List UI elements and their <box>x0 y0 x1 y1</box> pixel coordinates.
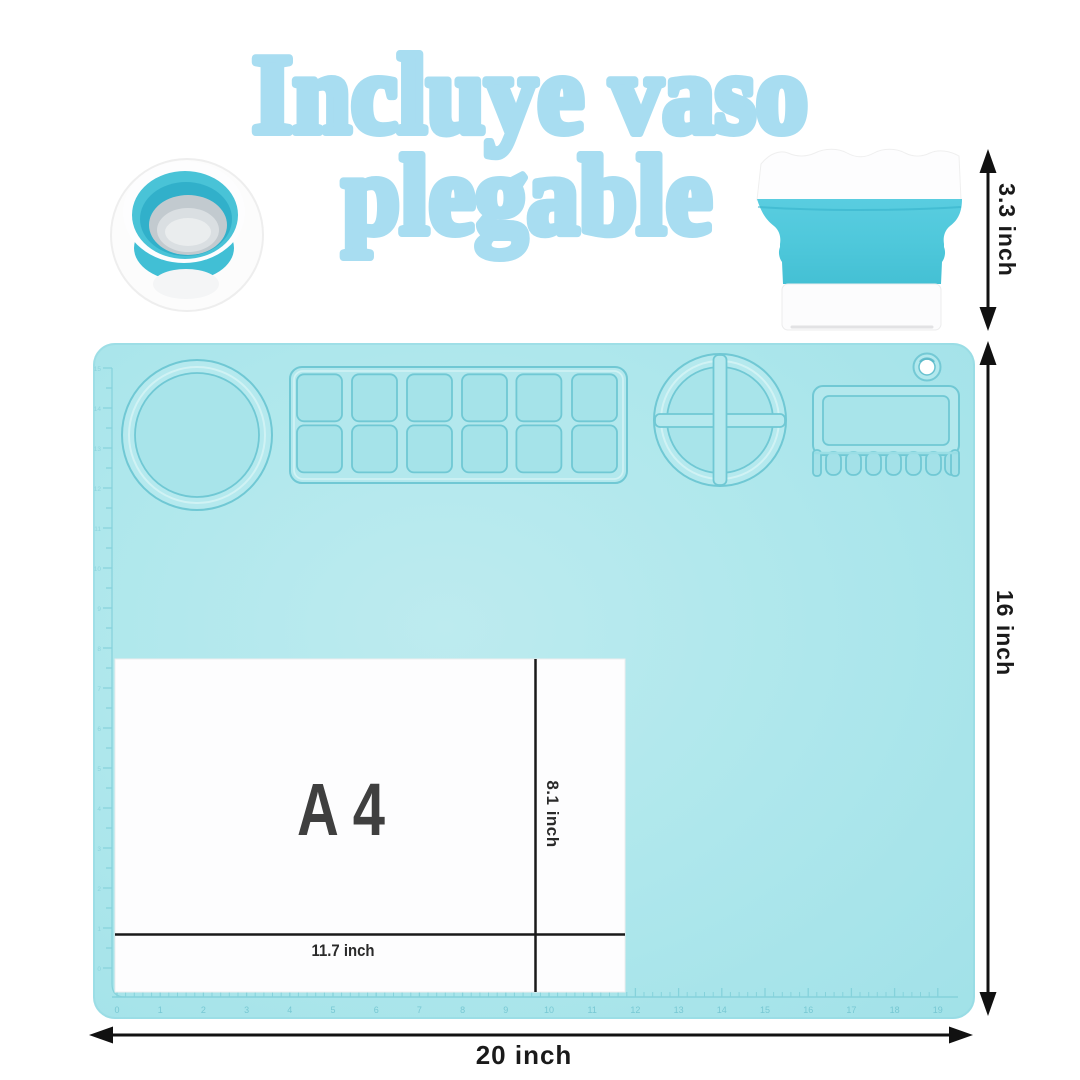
svg-text:15: 15 <box>760 1005 770 1015</box>
svg-text:13: 13 <box>674 1005 684 1015</box>
svg-text:11: 11 <box>94 526 101 533</box>
svg-text:plegable: plegable <box>342 134 712 258</box>
svg-text:8.1 inch: 8.1 inch <box>543 780 562 847</box>
svg-text:2: 2 <box>201 1005 206 1015</box>
svg-text:7: 7 <box>417 1005 422 1015</box>
svg-text:16: 16 <box>803 1005 813 1015</box>
svg-text:9: 9 <box>97 606 101 613</box>
svg-text:11.7 inch: 11.7 inch <box>312 941 375 960</box>
svg-text:0: 0 <box>114 1005 119 1015</box>
svg-text:10: 10 <box>544 1005 554 1015</box>
svg-text:3.3 inch: 3.3 inch <box>994 183 1020 277</box>
svg-text:17: 17 <box>846 1005 856 1015</box>
svg-text:12: 12 <box>94 486 102 493</box>
svg-text:3: 3 <box>244 1005 249 1015</box>
svg-text:1: 1 <box>97 926 101 933</box>
svg-text:8: 8 <box>97 646 101 653</box>
svg-text:3: 3 <box>97 846 101 853</box>
svg-text:10: 10 <box>94 566 102 573</box>
svg-text:5: 5 <box>330 1005 335 1015</box>
svg-text:4: 4 <box>97 806 101 813</box>
svg-text:1: 1 <box>158 1005 163 1015</box>
svg-text:4: 4 <box>287 1005 292 1015</box>
svg-text:A 4: A 4 <box>297 768 385 851</box>
svg-text:20 inch: 20 inch <box>476 1040 573 1070</box>
svg-text:12: 12 <box>630 1005 640 1015</box>
svg-text:11: 11 <box>588 1005 597 1015</box>
svg-text:9: 9 <box>503 1005 508 1015</box>
svg-text:15: 15 <box>94 366 102 373</box>
svg-text:14: 14 <box>94 406 102 413</box>
svg-text:16 inch: 16 inch <box>992 590 1018 676</box>
svg-text:18: 18 <box>890 1005 900 1015</box>
svg-text:19: 19 <box>933 1005 943 1015</box>
svg-text:2: 2 <box>97 886 101 893</box>
svg-text:6: 6 <box>97 726 101 733</box>
svg-text:5: 5 <box>97 766 101 773</box>
svg-text:0: 0 <box>97 966 101 973</box>
svg-text:7: 7 <box>97 686 101 693</box>
svg-text:6: 6 <box>374 1005 379 1015</box>
svg-text:14: 14 <box>717 1005 727 1015</box>
svg-text:8: 8 <box>460 1005 465 1015</box>
svg-text:13: 13 <box>94 446 102 453</box>
